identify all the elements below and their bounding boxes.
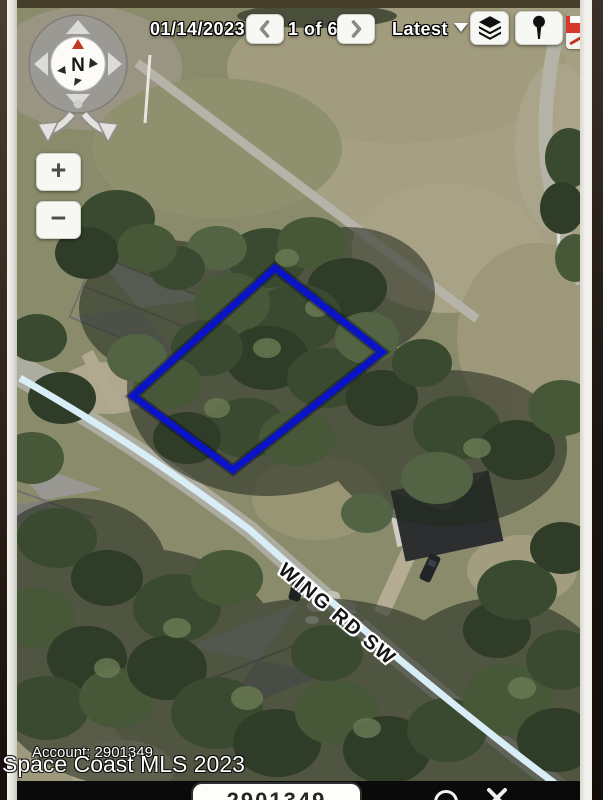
layers-button[interactable]: [470, 11, 509, 45]
frame-paper-left: [7, 0, 17, 800]
layers-icon: [475, 13, 505, 43]
rotate-left-arrow[interactable]: [38, 114, 72, 142]
photo-page-indicator: 1 of 6: [288, 19, 336, 40]
zoom-in-button[interactable]: +: [36, 153, 81, 191]
previous-photo-button[interactable]: [246, 14, 284, 44]
search-icon[interactable]: [434, 790, 458, 800]
imagery-version-dropdown[interactable]: Latest: [392, 19, 468, 40]
pin-button[interactable]: [515, 11, 563, 45]
rotate-right-arrow[interactable]: [84, 114, 118, 142]
bottom-action-bar: 2901349: [17, 781, 580, 800]
zoom-out-button[interactable]: −: [36, 201, 81, 239]
close-icon[interactable]: [486, 787, 508, 800]
account-number-field[interactable]: 2901349: [193, 784, 360, 800]
compass-control[interactable]: N: [24, 8, 134, 150]
next-photo-button[interactable]: [337, 14, 375, 44]
compass-north-label: N: [71, 55, 85, 76]
frame-paper-right: [580, 0, 592, 800]
map-pin-icon: [524, 13, 554, 43]
imagery-date-label: 01/14/2023: [150, 19, 245, 40]
document-icon-partial[interactable]: [566, 11, 580, 49]
imagery-version-label: Latest: [392, 19, 448, 39]
chevron-right-icon: [343, 16, 369, 42]
chevron-down-icon: [454, 23, 468, 32]
frame-edge-right: [592, 0, 603, 800]
chevron-left-icon: [252, 16, 278, 42]
frame-edge-left: [0, 0, 7, 800]
mls-map-viewer: WING RD SW 2901349 01/14/2023 1 of 6: [0, 0, 603, 800]
mls-copyright-watermark: Space Coast MLS 2023: [2, 751, 245, 778]
frame-edge-top: [0, 0, 603, 8]
